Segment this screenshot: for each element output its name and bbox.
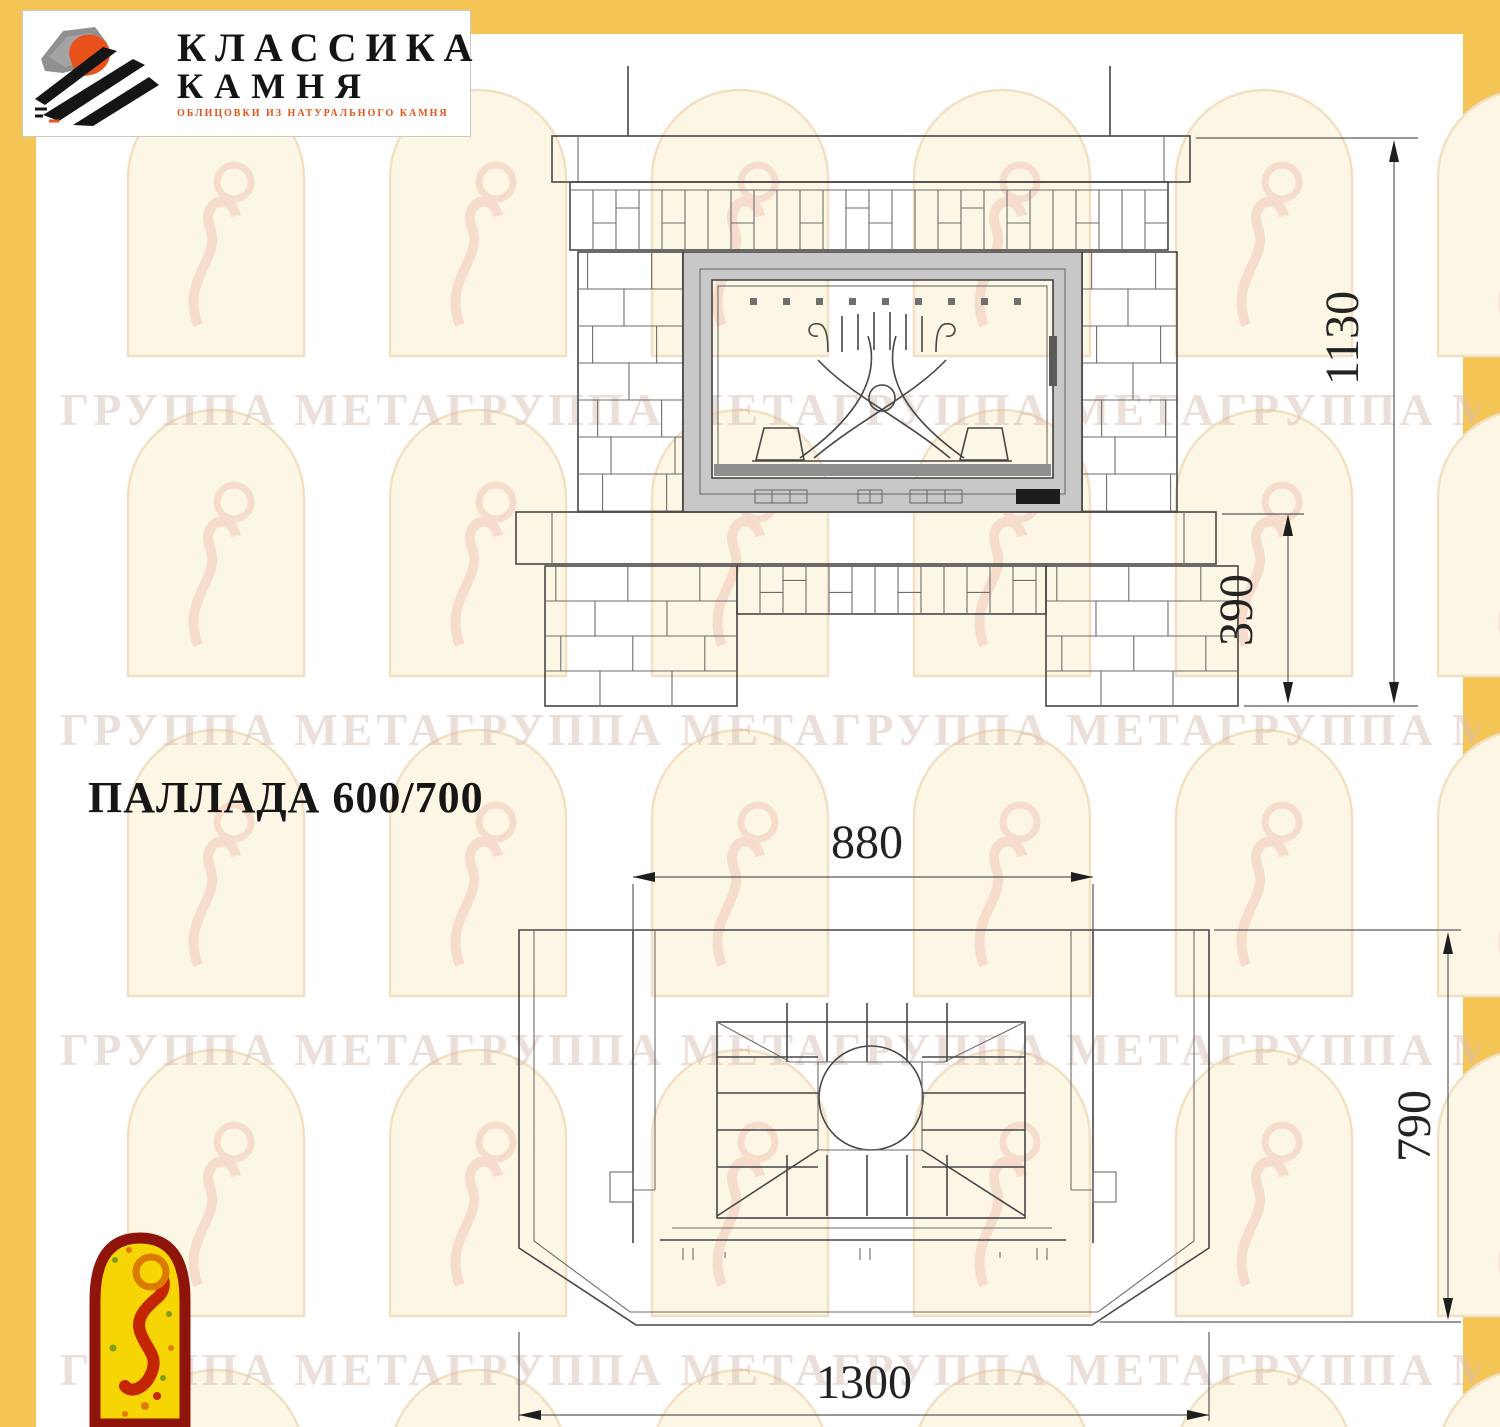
dim-label-firebox-width: 880: [831, 816, 903, 869]
pattern-lines: [760, 566, 1036, 614]
firebox-front: [683, 252, 1082, 512]
dimension-firebox-width: 880: [633, 816, 1093, 932]
firebox-sill: [714, 464, 1051, 476]
dim-label-total-height: 1130: [1316, 291, 1369, 385]
control-plate: [1016, 489, 1060, 504]
dimension-total-width: 1300: [519, 1332, 1209, 1421]
dimension-depth: 790: [1100, 930, 1461, 1322]
plan-view: [519, 930, 1209, 1325]
dim-label-hearth-height: 390: [1210, 574, 1263, 646]
base-tile-band: [760, 566, 1036, 614]
dim-label-depth: 790: [1388, 1090, 1441, 1162]
right-column-bricks: [1082, 252, 1177, 512]
pattern-lines: [593, 190, 1168, 250]
pattern-lines: [578, 252, 683, 512]
front-elevation: [516, 66, 1238, 706]
decorative-grate: [752, 312, 1012, 461]
technical-drawing: 1130 390 880 790 1300: [0, 0, 1500, 1427]
vent-dots: [750, 298, 1021, 305]
dimension-hearth-height: 390: [1210, 514, 1304, 704]
meta-group-logo: [85, 1228, 195, 1427]
pattern-lines: [545, 566, 737, 706]
pattern-lines: [1082, 252, 1177, 512]
left-pedestal-bricks: [545, 566, 737, 706]
door-handle: [1049, 336, 1057, 386]
page: ГРУППА МЕТАГРУППА МЕТАГРУППА МЕТАГРУППА …: [0, 0, 1500, 1427]
dim-label-total-width: 1300: [816, 1356, 912, 1409]
firebox-plan: [660, 1003, 1066, 1260]
left-column-bricks: [578, 252, 683, 512]
frieze-tile-pattern: [593, 190, 1168, 250]
